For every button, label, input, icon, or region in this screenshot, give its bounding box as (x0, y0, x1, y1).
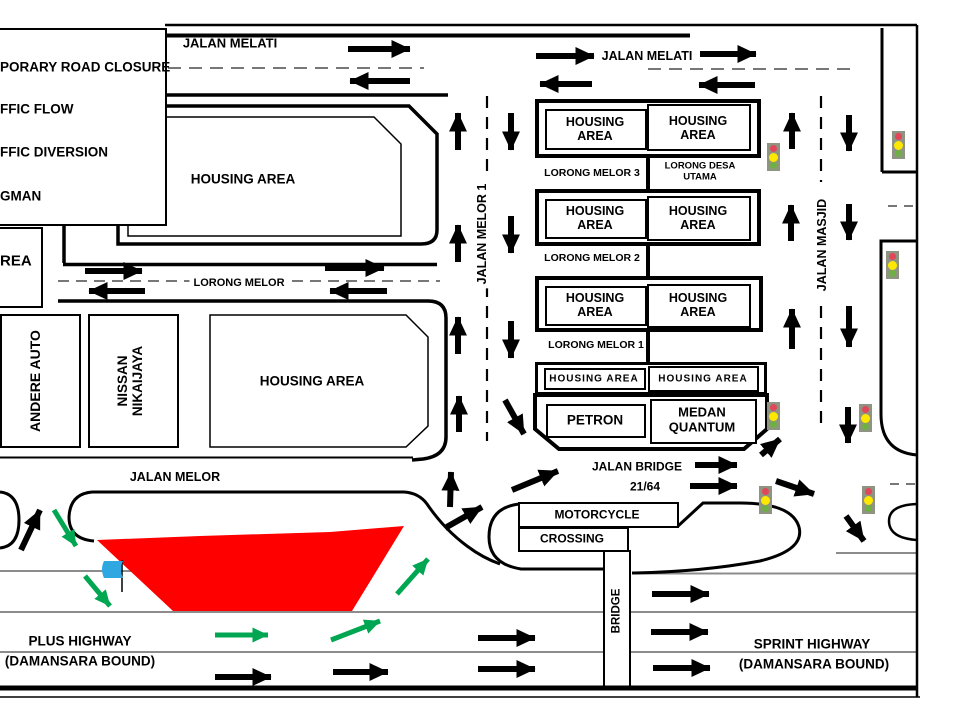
street-lorong-melor: LORONG MELOR (189, 277, 288, 289)
street-jalan-bridge-line1: JALAN BRIDGE (592, 460, 682, 473)
area-andere-auto: ANDERE AUTO (28, 330, 44, 432)
street-lorong-melor-1: LORONG MELOR 1 (548, 340, 644, 352)
housing-row3-right-label: HOUSING AREA (658, 291, 738, 319)
housing-row4-left-label: HOUSING AREA (549, 373, 638, 384)
street-jalan-melati-right: JALAN MELATI (602, 49, 693, 63)
label-sprint-highway-bound: (DAMANSARA BOUND) (739, 656, 889, 671)
traffic-light-icon (892, 131, 905, 159)
traffic-light-icon (759, 486, 772, 514)
street-jalan-bridge-line2: 21/64 (630, 480, 660, 493)
area-petron: PETRON (567, 412, 623, 427)
street-jalan-melati-left: JALAN MELATI (183, 37, 277, 52)
label-plus-highway: PLUS HIGHWAY (28, 633, 131, 648)
road-closure-area (97, 526, 404, 611)
traffic-light-icon (859, 404, 872, 432)
traffic-light-icon (886, 251, 899, 279)
street-jalan-masjid: JALAN MASJID (815, 195, 829, 295)
legend-line-closure: PORARY ROAD CLOSURE (0, 59, 170, 74)
label-motorcycle: MOTORCYCLE (554, 508, 639, 521)
area-medan-quantum: MEDAN QUANTUM (660, 405, 745, 434)
housing-row2-left-label: HOUSING AREA (555, 204, 635, 232)
label-plus-highway-bound: (DAMANSARA BOUND) (5, 653, 155, 668)
area-housing-middle: HOUSING AREA (260, 373, 365, 388)
traffic-light-icon (862, 486, 875, 514)
street-lorong-desa-utama: LORONG DESA UTAMA (661, 161, 739, 182)
legend-line-diversion: FFIC DIVERSION (0, 144, 108, 159)
traffic-light-icon (767, 143, 780, 171)
street-lorong-melor-3: LORONG MELOR 3 (544, 168, 640, 180)
flagman-flag-icon (102, 561, 123, 578)
legend-line-flagman: GMAN (0, 188, 41, 203)
housing-row1-right-label: HOUSING AREA (658, 114, 738, 142)
street-jalan-melor: JALAN MELOR (130, 470, 220, 484)
street-lorong-melor-2: LORONG MELOR 2 (544, 253, 640, 265)
label-crossing: CROSSING (540, 532, 604, 545)
housing-row2-right-label: HOUSING AREA (658, 204, 738, 232)
housing-row1-left-label: HOUSING AREA (555, 115, 635, 143)
traffic-light-icon (767, 402, 780, 430)
area-housing-left-cut: REA (0, 254, 32, 271)
traffic-diversion-map: PORARY ROAD CLOSURE FFIC FLOW FFIC DIVER… (0, 0, 960, 720)
label-sprint-highway: SPRINT HIGHWAY (754, 636, 871, 651)
housing-row4-right-label: HOUSING AREA (658, 373, 747, 384)
area-nissan: NISSAN NIKAIJAYA (115, 321, 145, 441)
housing-row3-left-label: HOUSING AREA (555, 291, 635, 319)
street-jalan-melor-1-vertical: JALAN MELOR 1 (475, 180, 489, 289)
legend-line-flow: FFIC FLOW (0, 101, 73, 116)
label-bridge: BRIDGE (611, 589, 624, 634)
area-housing-upper: HOUSING AREA (191, 171, 296, 186)
